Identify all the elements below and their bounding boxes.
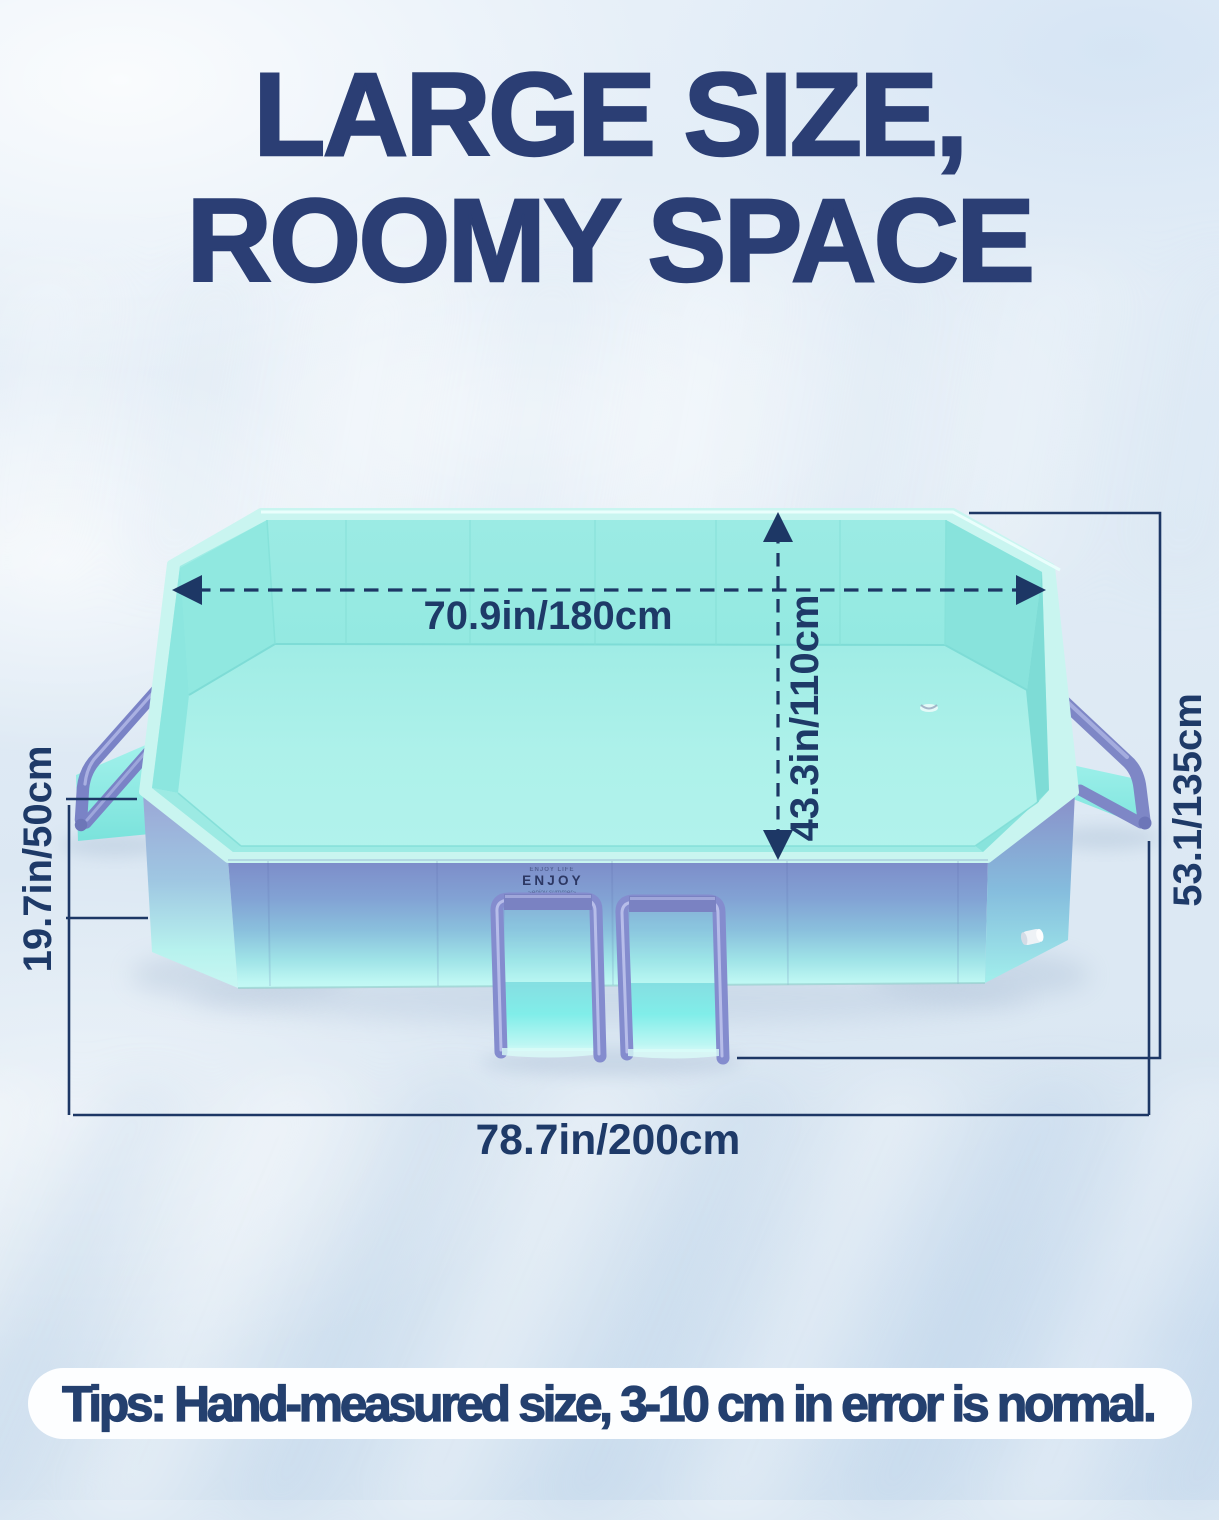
svg-text:19.7in/50cm: 19.7in/50cm [16, 746, 60, 973]
svg-text:53.1/135cm: 53.1/135cm [1166, 693, 1210, 907]
svg-text:70.9in/180cm: 70.9in/180cm [423, 594, 672, 638]
svg-text:43.3in/110cm: 43.3in/110cm [783, 595, 827, 842]
svg-text:78.7in/200cm: 78.7in/200cm [476, 1117, 741, 1164]
svg-text:ENJOY: ENJOY [522, 873, 584, 888]
